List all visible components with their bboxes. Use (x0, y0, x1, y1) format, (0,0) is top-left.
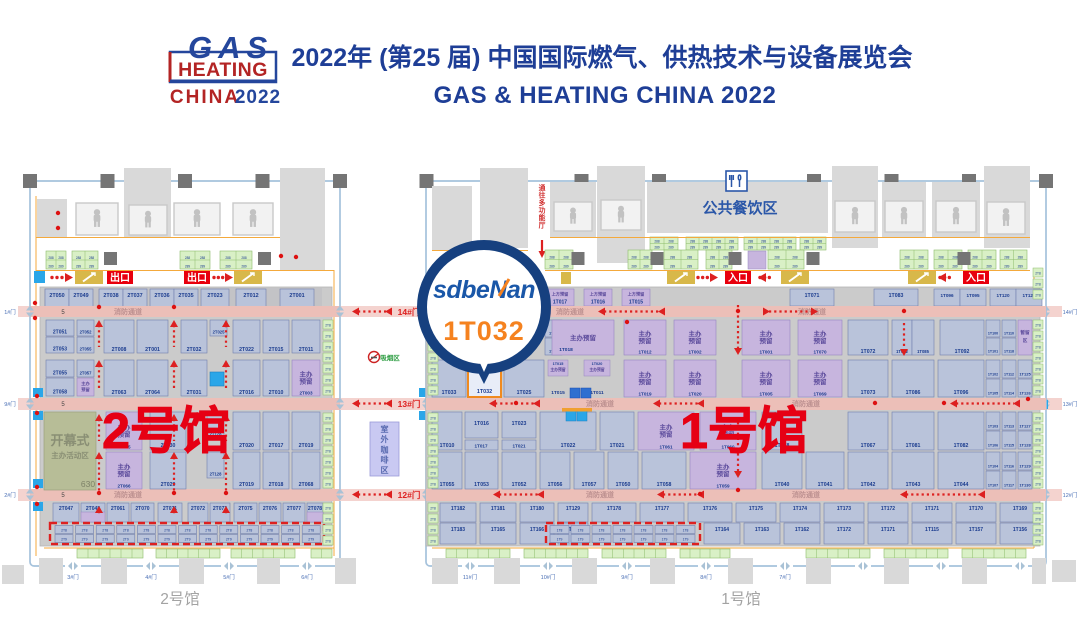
svg-text:1T8: 1T8 (557, 529, 563, 533)
svg-text:1T162: 1T162 (795, 527, 809, 533)
svg-text:2T012: 2T012 (243, 293, 258, 299)
svg-text:288: 288 (687, 256, 693, 260)
svg-text:2T8: 2T8 (308, 529, 314, 533)
svg-text:1T115: 1T115 (1004, 444, 1014, 448)
svg-text:1T015: 1T015 (553, 362, 564, 366)
svg-text:9#门: 9#门 (621, 573, 633, 581)
svg-text:1T101: 1T101 (988, 350, 998, 354)
svg-text:1T8: 1T8 (620, 529, 626, 533)
svg-text:288: 288 (804, 240, 810, 244)
svg-text:2T066: 2T066 (117, 484, 130, 489)
svg-text:289: 289 (817, 246, 823, 250)
svg-text:1T156: 1T156 (1013, 527, 1027, 533)
svg-text:外: 外 (381, 434, 389, 444)
svg-text:主办: 主办 (639, 370, 653, 379)
svg-text:289: 289 (89, 265, 95, 269)
svg-text:289: 289 (668, 246, 674, 250)
svg-text:1T001: 1T001 (759, 350, 772, 355)
svg-text:288: 288 (654, 240, 660, 244)
svg-text:289: 289 (723, 265, 729, 269)
svg-text:1T9: 1T9 (620, 538, 626, 542)
svg-text:289: 289 (938, 265, 944, 269)
svg-text:1T011: 1T011 (590, 390, 604, 396)
svg-text:1T100: 1T100 (988, 332, 998, 336)
svg-text:2T018: 2T018 (269, 482, 284, 488)
svg-text:289: 289 (549, 265, 555, 269)
svg-text:1T8: 1T8 (578, 529, 584, 533)
svg-text:主办: 主办 (639, 329, 653, 338)
svg-text:289: 289 (792, 265, 798, 269)
svg-text:288: 288 (792, 256, 798, 260)
svg-text:1T129: 1T129 (566, 506, 580, 512)
svg-text:288: 288 (563, 256, 569, 260)
svg-text:入口: 入口 (728, 272, 748, 284)
svg-text:1T118: 1T118 (1004, 350, 1014, 354)
svg-text:2T058: 2T058 (53, 390, 67, 396)
svg-text:1T016: 1T016 (591, 300, 605, 306)
svg-text:主办: 主办 (717, 462, 731, 471)
svg-text:2T001: 2T001 (145, 347, 160, 353)
svg-text:2T9: 2T9 (185, 538, 191, 542)
svg-text:主办: 主办 (81, 380, 90, 387)
svg-text:2T072: 2T072 (191, 506, 205, 512)
svg-text:2T8: 2T8 (1035, 357, 1041, 361)
svg-text:2T8: 2T8 (325, 379, 331, 383)
svg-text:GAS & HEATING CHINA 2022: GAS & HEATING CHINA 2022 (434, 82, 777, 109)
svg-text:2T025: 2T025 (213, 330, 226, 335)
svg-text:2T017: 2T017 (269, 443, 284, 449)
svg-text:288: 288 (225, 256, 231, 260)
svg-text:288: 288 (972, 256, 978, 260)
svg-text:288: 288 (670, 256, 676, 260)
svg-text:预留: 预留 (760, 336, 774, 345)
svg-text:289: 289 (986, 265, 992, 269)
svg-text:288: 288 (1018, 256, 1024, 260)
svg-text:主办: 主办 (760, 329, 774, 338)
svg-text:消防通道: 消防通道 (556, 307, 584, 316)
svg-text:2T8: 2T8 (1035, 335, 1041, 339)
svg-text:1T9: 1T9 (662, 538, 668, 542)
svg-text:1T8: 1T8 (599, 529, 605, 533)
svg-text:2T8: 2T8 (325, 417, 331, 421)
svg-text:9#门: 9#门 (4, 400, 16, 408)
svg-text:1T104: 1T104 (988, 465, 998, 469)
svg-text:2T8: 2T8 (226, 529, 232, 533)
svg-text:289: 289 (904, 265, 910, 269)
svg-text:2T038: 2T038 (103, 293, 118, 299)
svg-text:2T8: 2T8 (325, 324, 331, 328)
svg-text:2T8: 2T8 (1035, 461, 1041, 465)
svg-text:1T019: 1T019 (638, 392, 651, 397)
svg-text:1T181: 1T181 (491, 506, 505, 512)
svg-text:2T051: 2T051 (53, 330, 67, 336)
svg-text:2T8: 2T8 (325, 518, 331, 522)
svg-text:1T053: 1T053 (474, 482, 489, 488)
svg-text:2T8: 2T8 (430, 472, 436, 476)
svg-text:1T002: 1T002 (688, 350, 701, 355)
svg-text:288: 288 (710, 256, 716, 260)
svg-text:1T174: 1T174 (793, 506, 807, 512)
svg-text:1T021: 1T021 (610, 443, 625, 449)
svg-text:主办: 主办 (689, 370, 703, 379)
svg-text:1T175: 1T175 (749, 506, 763, 512)
svg-text:2022: 2022 (235, 87, 281, 108)
svg-text:暂留: 暂留 (1020, 329, 1030, 336)
svg-text:1T082: 1T082 (954, 443, 969, 449)
svg-text:14#门: 14#门 (398, 307, 421, 317)
svg-text:289: 289 (703, 246, 709, 250)
svg-text:消防通道: 消防通道 (114, 490, 142, 499)
svg-text:厅: 厅 (539, 222, 546, 230)
svg-text:2T020: 2T020 (239, 443, 254, 449)
svg-text:能: 能 (539, 213, 546, 222)
svg-text:1T157: 1T157 (969, 527, 983, 533)
svg-text:1T105: 1T105 (988, 392, 998, 396)
svg-text:1T112: 1T112 (1004, 373, 1014, 377)
svg-text:2T8: 2T8 (1035, 507, 1041, 511)
svg-text:1号馆: 1号馆 (680, 403, 808, 459)
svg-text:1T164: 1T164 (715, 527, 729, 533)
svg-text:HEATING: HEATING (178, 59, 268, 81)
svg-text:主办: 主办 (118, 462, 132, 471)
svg-text:288: 288 (774, 240, 780, 244)
svg-text:2T8: 2T8 (1035, 346, 1041, 350)
svg-text:2T9: 2T9 (82, 538, 88, 542)
svg-text:主办预留: 主办预留 (550, 367, 565, 372)
svg-text:1T081: 1T081 (906, 443, 921, 449)
svg-text:1T9: 1T9 (599, 538, 605, 542)
svg-text:2T063: 2T063 (112, 390, 127, 396)
svg-text:288: 288 (918, 256, 924, 260)
svg-text:2T037: 2T037 (127, 293, 142, 299)
svg-text:1T095: 1T095 (966, 293, 979, 298)
svg-text:288: 288 (904, 256, 910, 260)
svg-text:1T055: 1T055 (440, 482, 455, 488)
svg-text:2T8: 2T8 (1035, 379, 1041, 383)
svg-text:1T010: 1T010 (440, 443, 455, 449)
svg-text:1T016: 1T016 (474, 421, 489, 427)
svg-text:2T023: 2T023 (207, 293, 222, 299)
svg-text:1T126: 1T126 (1019, 391, 1031, 396)
svg-text:预留: 预留 (689, 336, 703, 345)
svg-text:2T8: 2T8 (61, 529, 67, 533)
svg-text:预留: 预留 (814, 377, 828, 386)
svg-text:2T8: 2T8 (325, 357, 331, 361)
svg-text:1T102: 1T102 (988, 373, 998, 377)
svg-text:2T019: 2T019 (239, 482, 254, 488)
svg-text:1T178: 1T178 (607, 506, 621, 512)
svg-text:2T8: 2T8 (430, 428, 436, 432)
svg-text:2T8: 2T8 (205, 529, 211, 533)
svg-text:2T8: 2T8 (325, 439, 331, 443)
svg-text:6#门: 6#门 (301, 573, 313, 581)
svg-text:289: 289 (48, 265, 54, 269)
svg-text:2T8: 2T8 (430, 439, 436, 443)
svg-text:1T017: 1T017 (474, 444, 487, 449)
svg-text:2T068: 2T068 (299, 482, 314, 488)
svg-text:288: 288 (716, 240, 722, 244)
svg-text:2T055: 2T055 (80, 347, 93, 352)
svg-text:1T9: 1T9 (557, 538, 563, 542)
svg-text:1T015: 1T015 (551, 390, 565, 396)
svg-text:2T8: 2T8 (1035, 472, 1041, 476)
svg-text:2T8: 2T8 (102, 529, 108, 533)
svg-text:预留: 预留 (814, 336, 828, 345)
svg-text:1T058: 1T058 (657, 482, 672, 488)
svg-text:2T8: 2T8 (1035, 390, 1041, 394)
svg-text:1号馆: 1号馆 (721, 590, 761, 608)
svg-text:1T172: 1T172 (837, 527, 851, 533)
svg-text:2T8: 2T8 (1035, 324, 1041, 328)
svg-text:2T9: 2T9 (164, 538, 170, 542)
svg-text:1T005: 1T005 (759, 392, 772, 397)
svg-text:2T8: 2T8 (143, 529, 149, 533)
svg-text:2T8: 2T8 (1035, 529, 1041, 533)
svg-text:1T166: 1T166 (530, 527, 544, 533)
svg-text:消防通道: 消防通道 (792, 490, 820, 499)
svg-text:2T061: 2T061 (111, 506, 125, 512)
svg-text:1T022: 1T022 (561, 443, 576, 449)
svg-text:1T107: 1T107 (988, 484, 998, 488)
svg-text:289: 289 (654, 246, 660, 250)
svg-text:2T9: 2T9 (205, 538, 211, 542)
svg-text:1T041: 1T041 (818, 482, 833, 488)
svg-text:2T8: 2T8 (430, 540, 436, 544)
svg-text:1T127: 1T127 (1019, 424, 1031, 429)
svg-text:1T067: 1T067 (861, 443, 876, 449)
svg-text:1T169: 1T169 (1013, 506, 1027, 512)
svg-text:2022年 (第25 届) 中国国际燃气、供热技术与设备展览: 2022年 (第25 届) 中国国际燃气、供热技术与设备展览会 (292, 43, 913, 72)
svg-text:1T9: 1T9 (578, 538, 584, 542)
svg-text:2T9: 2T9 (308, 538, 314, 542)
svg-text:1T085: 1T085 (917, 349, 930, 354)
svg-text:1T117: 1T117 (1004, 484, 1014, 488)
svg-text:288: 288 (643, 256, 649, 260)
svg-text:主办: 主办 (660, 423, 674, 432)
svg-text:1T110: 1T110 (1004, 332, 1014, 336)
svg-text:289: 289 (774, 246, 780, 250)
svg-text:1T129: 1T129 (1019, 464, 1031, 469)
svg-text:14#门: 14#门 (1063, 308, 1078, 316)
svg-text:1T017: 1T017 (553, 300, 567, 306)
svg-text:1T018: 1T018 (559, 347, 573, 353)
svg-text:288: 288 (58, 256, 64, 260)
svg-text:288: 288 (631, 256, 637, 260)
svg-text:1T061: 1T061 (659, 445, 672, 450)
svg-text:289: 289 (1004, 265, 1010, 269)
svg-text:1T057: 1T057 (582, 482, 597, 488)
svg-text:288: 288 (48, 256, 54, 260)
svg-text:289: 289 (952, 265, 958, 269)
svg-text:2T052: 2T052 (80, 330, 93, 335)
svg-text:1T8: 1T8 (641, 529, 647, 533)
svg-text:289: 289 (643, 265, 649, 269)
svg-text:消防通道: 消防通道 (586, 490, 614, 499)
svg-text:1T120: 1T120 (996, 293, 1009, 298)
svg-text:2T9: 2T9 (288, 538, 294, 542)
svg-text:2T010: 2T010 (269, 390, 284, 396)
svg-text:咖: 咖 (381, 444, 389, 454)
svg-text:预留: 预留 (639, 336, 653, 345)
svg-text:288: 288 (200, 256, 206, 260)
svg-text:区: 区 (381, 466, 389, 475)
svg-text:2T008: 2T008 (112, 347, 127, 353)
svg-text:2T8: 2T8 (325, 428, 331, 432)
svg-text:12#门: 12#门 (1063, 491, 1078, 499)
svg-text:2号馆: 2号馆 (160, 590, 200, 608)
svg-text:2T070: 2T070 (135, 506, 149, 512)
svg-text:1T072: 1T072 (861, 349, 876, 355)
svg-text:公共餐饮区: 公共餐饮区 (702, 199, 777, 217)
svg-text:1T116: 1T116 (1004, 465, 1014, 469)
svg-text:288: 288 (748, 240, 754, 244)
svg-text:2T8: 2T8 (1035, 518, 1041, 522)
svg-text:2T8: 2T8 (325, 540, 331, 544)
svg-text:上方预留: 上方预留 (552, 291, 569, 298)
svg-text:2T8: 2T8 (325, 483, 331, 487)
svg-text:289: 289 (670, 265, 676, 269)
svg-text:1T059: 1T059 (716, 484, 729, 489)
svg-text:主办: 主办 (814, 370, 828, 379)
svg-text:289: 289 (804, 246, 810, 250)
svg-text:2T8: 2T8 (430, 529, 436, 533)
svg-text:2T050: 2T050 (49, 293, 64, 299)
svg-text:2T8: 2T8 (185, 529, 191, 533)
svg-text:2T8: 2T8 (325, 346, 331, 350)
svg-text:288: 288 (185, 256, 191, 260)
svg-text:1T170: 1T170 (969, 506, 983, 512)
svg-text:289: 289 (563, 265, 569, 269)
svg-text:2T9: 2T9 (143, 538, 149, 542)
svg-text:2T8: 2T8 (325, 390, 331, 394)
svg-text:288: 288 (703, 240, 709, 244)
svg-text:289: 289 (972, 265, 978, 269)
svg-text:2T8: 2T8 (325, 450, 331, 454)
svg-text:预留: 预留 (81, 386, 89, 393)
svg-text:区: 区 (1023, 337, 1028, 344)
svg-text:预留: 预留 (639, 377, 653, 386)
svg-text:2T036: 2T036 (154, 293, 169, 299)
svg-text:2T9: 2T9 (61, 538, 67, 542)
svg-text:2T015: 2T015 (269, 347, 284, 353)
svg-text:1T171: 1T171 (925, 506, 939, 512)
svg-text:2T9: 2T9 (267, 538, 273, 542)
svg-text:288: 288 (549, 256, 555, 260)
svg-text:上方预留: 上方预留 (590, 291, 607, 298)
svg-text:预留: 预留 (760, 377, 774, 386)
svg-text:288: 288 (241, 256, 247, 260)
svg-text:288: 288 (76, 256, 82, 260)
svg-text:2T011: 2T011 (299, 347, 314, 353)
svg-text:289: 289 (710, 265, 716, 269)
svg-text:2T8: 2T8 (430, 390, 436, 394)
svg-text:sdbeNan: sdbeNan (433, 276, 535, 304)
svg-text:289: 289 (200, 265, 206, 269)
svg-text:2T8: 2T8 (1035, 483, 1041, 487)
svg-text:1T115: 1T115 (925, 527, 939, 533)
svg-text:12#门: 12#门 (398, 490, 421, 500)
svg-text:289: 289 (241, 265, 247, 269)
svg-text:2T8: 2T8 (325, 335, 331, 339)
svg-text:吸烟区: 吸烟区 (380, 353, 400, 362)
svg-text:主办: 主办 (760, 370, 774, 379)
svg-text:1T033: 1T033 (442, 390, 457, 396)
svg-text:2T016: 2T016 (239, 390, 254, 396)
svg-text:1T012: 1T012 (638, 350, 651, 355)
svg-text:出口: 出口 (110, 271, 130, 284)
svg-text:1T9: 1T9 (683, 538, 689, 542)
svg-text:289: 289 (918, 265, 924, 269)
svg-text:1T023: 1T023 (512, 421, 527, 427)
svg-text:288: 288 (729, 240, 735, 244)
svg-text:1T069: 1T069 (813, 392, 826, 397)
svg-text:1T8: 1T8 (683, 529, 689, 533)
svg-text:2T078: 2T078 (308, 506, 322, 512)
svg-text:2T032: 2T032 (187, 347, 202, 353)
svg-text:7#门: 7#门 (779, 573, 791, 581)
svg-text:630: 630 (81, 479, 95, 489)
svg-text:2T049: 2T049 (73, 293, 88, 299)
svg-text:2T8: 2T8 (1035, 272, 1041, 276)
svg-text:2T031: 2T031 (187, 390, 202, 396)
svg-text:2T8: 2T8 (1035, 417, 1041, 421)
svg-text:预留: 预留 (689, 377, 703, 386)
svg-text:1T130: 1T130 (1019, 483, 1031, 488)
svg-text:13#门: 13#门 (398, 399, 421, 409)
svg-text:预留: 预留 (300, 377, 314, 386)
svg-text:288: 288 (817, 240, 823, 244)
svg-text:11#门: 11#门 (463, 573, 477, 581)
svg-text:1T015: 1T015 (629, 300, 643, 306)
svg-text:1T020: 1T020 (688, 392, 701, 397)
svg-text:1T070: 1T070 (813, 350, 826, 355)
svg-text:1T052: 1T052 (512, 482, 527, 488)
svg-text:1T083: 1T083 (889, 293, 904, 299)
svg-text:预留: 预留 (118, 469, 132, 478)
svg-text:预留: 预留 (660, 430, 674, 439)
svg-text:2T001: 2T001 (289, 293, 304, 299)
svg-text:13#门: 13#门 (1063, 400, 1078, 408)
svg-text:1T128: 1T128 (1019, 443, 1031, 448)
svg-text:2T022: 2T022 (239, 347, 254, 353)
svg-text:1T040: 1T040 (775, 482, 790, 488)
svg-text:2T8: 2T8 (1035, 540, 1041, 544)
svg-text:2T8: 2T8 (430, 518, 436, 522)
svg-text:1T021: 1T021 (512, 444, 525, 449)
svg-text:2T8: 2T8 (430, 450, 436, 454)
svg-text:1T043: 1T043 (906, 482, 921, 488)
svg-text:2T047: 2T047 (59, 506, 73, 512)
svg-text:1T114: 1T114 (1004, 392, 1014, 396)
svg-text:1T171: 1T171 (881, 527, 895, 533)
svg-text:往: 往 (539, 191, 546, 200)
svg-text:2T8: 2T8 (1035, 368, 1041, 372)
svg-text:2T064: 2T064 (145, 390, 160, 396)
svg-text:289: 289 (774, 265, 780, 269)
svg-text:288: 288 (668, 240, 674, 244)
svg-text:2T8: 2T8 (288, 529, 294, 533)
svg-text:主办预留: 主办预留 (589, 367, 604, 372)
svg-text:2T8: 2T8 (430, 417, 436, 421)
svg-text:2T8: 2T8 (325, 461, 331, 465)
svg-text:288: 288 (986, 256, 992, 260)
svg-text:289: 289 (1018, 265, 1024, 269)
svg-text:2T8: 2T8 (430, 483, 436, 487)
svg-text:288: 288 (787, 240, 793, 244)
svg-text:2T075: 2T075 (238, 506, 252, 512)
svg-text:1T113: 1T113 (1004, 425, 1014, 429)
svg-text:2T8: 2T8 (430, 379, 436, 383)
